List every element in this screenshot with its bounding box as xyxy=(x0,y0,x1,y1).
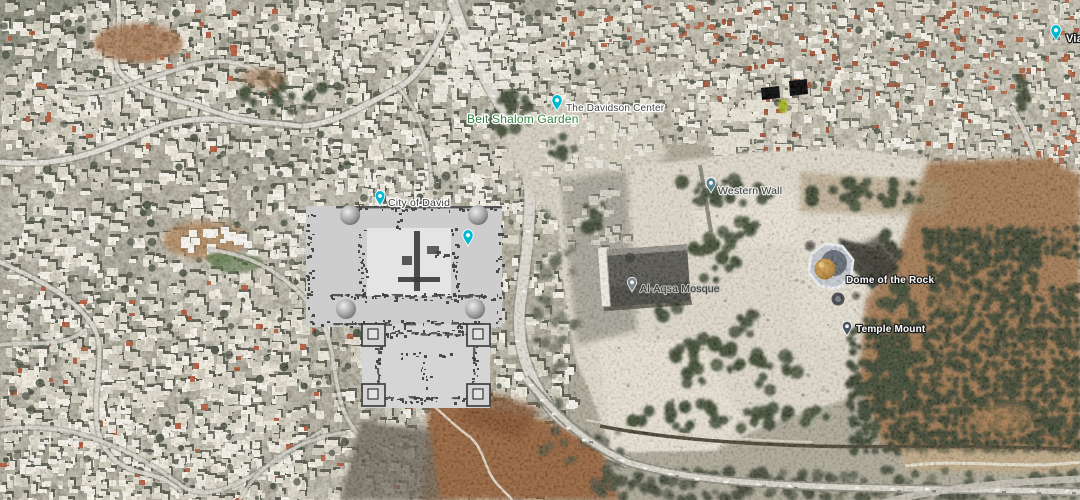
svg-text:Western Wall: Western Wall xyxy=(718,185,782,197)
svg-text:Via: Via xyxy=(1066,33,1080,45)
svg-text:Dome of the Rock: Dome of the Rock xyxy=(846,275,934,286)
svg-text:Temple Mount: Temple Mount xyxy=(856,324,926,335)
svg-text:City of David: City of David xyxy=(388,197,450,209)
svg-text:Al-Aqsa Mosque: Al-Aqsa Mosque xyxy=(640,283,720,295)
svg-text:The Davidson Center: The Davidson Center xyxy=(566,103,665,114)
svg-text:Beit Shalom Garden: Beit Shalom Garden xyxy=(467,112,579,126)
